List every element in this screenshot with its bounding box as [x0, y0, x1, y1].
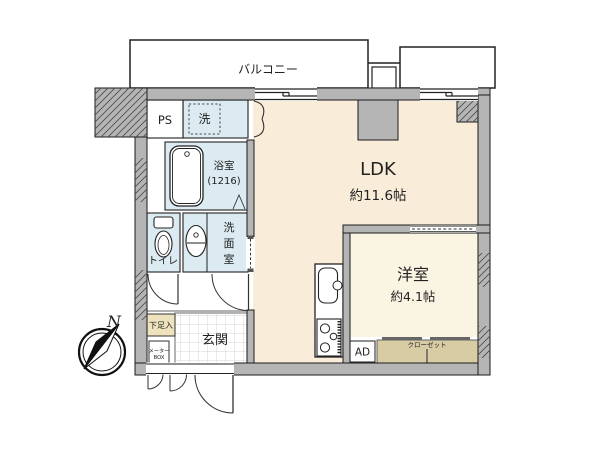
wall-ldk-left-upper: [247, 140, 254, 240]
window-ldk-left: [255, 87, 317, 101]
label-ldk-size: 約11.6帖: [349, 188, 406, 204]
label-north: N: [106, 312, 122, 331]
label-meter-box-2: BOX: [154, 355, 165, 361]
sliding-door-ldk-hall: [246, 236, 255, 273]
sliding-door-western: [410, 225, 476, 233]
wall-western-left: [343, 225, 350, 363]
label-bath-size: (1216): [207, 176, 240, 187]
label-toilet: トイレ: [148, 256, 178, 267]
balcony-right-outline: [400, 47, 495, 88]
label-ad: AD: [355, 347, 370, 359]
door-toilet: [148, 274, 178, 304]
label-ldk: LDK: [360, 159, 397, 180]
bathtub-icon: [170, 146, 203, 206]
floorplan-svg: バルコニー PS 洗 浴室 (1216) トイレ 洗 面 室 LDK 約11.6…: [0, 0, 600, 450]
door-entrance: [194, 363, 234, 414]
label-washroom-1: 洗: [224, 221, 235, 234]
label-western-size: 約4.1帖: [391, 289, 436, 304]
door-meter-box: [146, 363, 194, 392]
label-ps: PS: [158, 113, 172, 127]
label-balcony: バルコニー: [238, 63, 298, 77]
label-meter-box-1: メーター: [149, 347, 170, 355]
label-laundry: 洗: [198, 112, 210, 126]
closet-door-track-left: [382, 337, 422, 341]
label-washroom-2: 面: [224, 237, 235, 250]
window-ldk-right: [420, 87, 478, 101]
room-western-floor: [350, 233, 478, 337]
label-closet: クローゼット: [408, 340, 447, 349]
room-laundry: [183, 100, 248, 138]
label-western: 洋室: [397, 265, 429, 284]
kitchen-counter: [315, 264, 343, 357]
stove-icon: [317, 319, 341, 356]
label-washroom-3: 室: [224, 252, 235, 266]
balcony-divider: [372, 67, 396, 88]
door-washroom: [212, 274, 249, 311]
wall-pillar: [358, 100, 398, 140]
compass: N: [79, 312, 125, 375]
label-bath: 浴室: [214, 159, 235, 172]
floorplan: バルコニー PS 洗 浴室 (1216) トイレ 洗 面 室 LDK 約11.6…: [0, 0, 600, 450]
toilet-icon: [154, 217, 173, 257]
label-genkan: 玄関: [202, 333, 228, 348]
balcony: [130, 40, 495, 88]
wall-ldk-left-lower: [247, 310, 254, 363]
label-shoe-box: 下足入: [149, 321, 173, 330]
closet-door-track-right: [430, 337, 470, 341]
